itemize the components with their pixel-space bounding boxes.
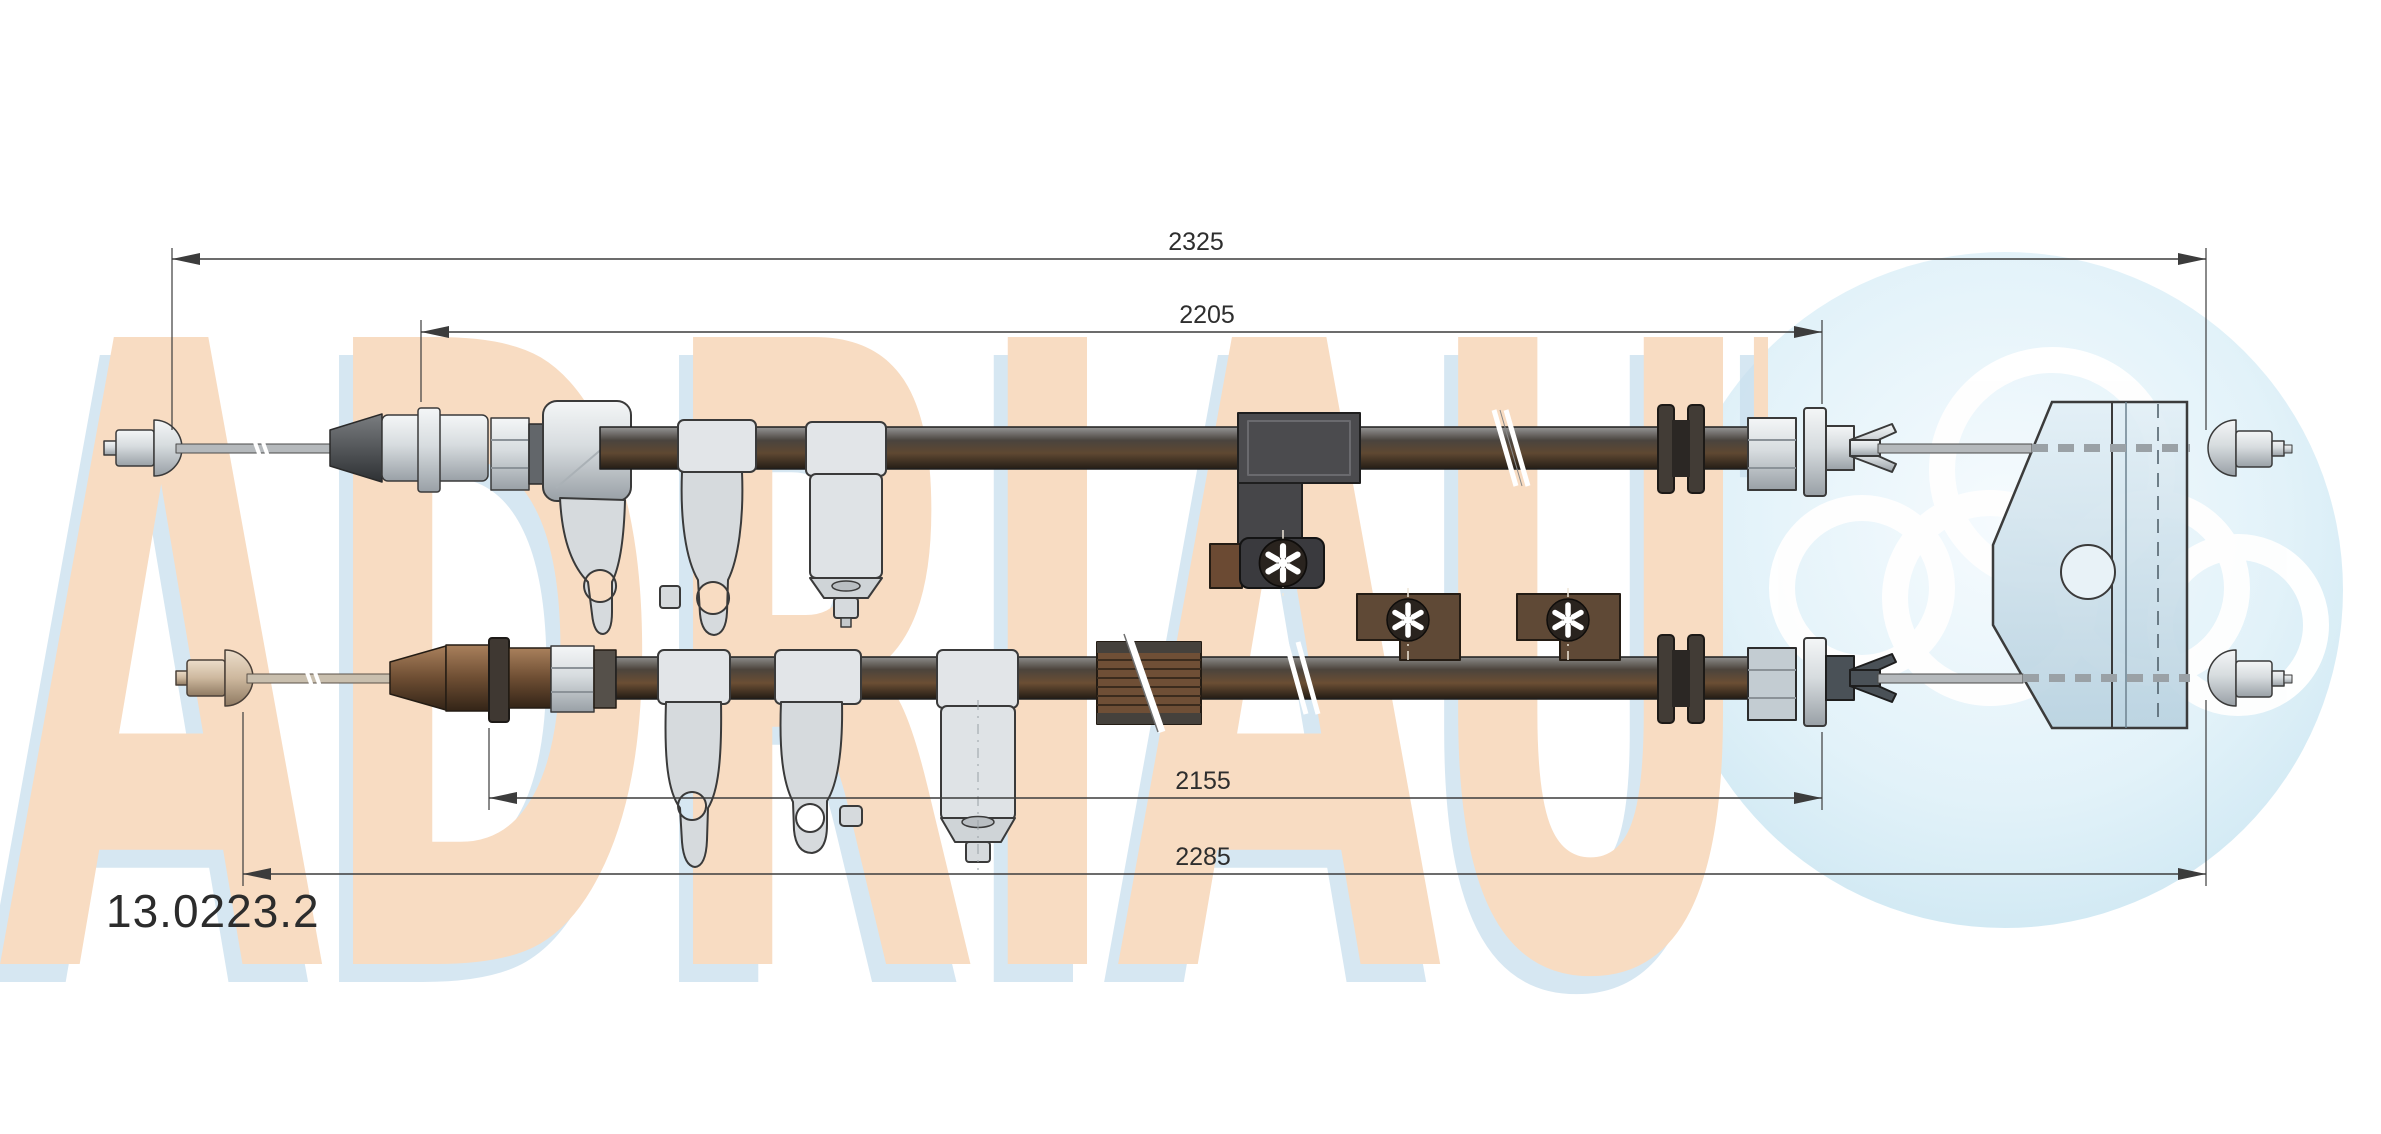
lower-mounting-flange-right bbox=[1804, 638, 1826, 726]
upper-left-cable-stub bbox=[104, 441, 117, 455]
upper-inner-cable-right bbox=[1878, 444, 2032, 453]
lower-inner-cable-right bbox=[1878, 674, 2023, 683]
dimension-label: 2155 bbox=[1175, 767, 1231, 795]
dimension-label: 2325 bbox=[1168, 228, 1224, 256]
corrugated-sleeve bbox=[1097, 634, 1201, 732]
upper-right-nipple bbox=[2236, 431, 2272, 467]
lower-adjuster-housing bbox=[446, 645, 489, 711]
star-fastener-icon bbox=[1387, 599, 1429, 641]
part-number: 13.0223.2 bbox=[106, 885, 320, 937]
upper-bolt-stud bbox=[834, 598, 858, 618]
star-fastener-icon bbox=[1259, 539, 1306, 586]
upper-left-nipple bbox=[116, 430, 154, 466]
star-fastener-icon bbox=[1547, 599, 1589, 641]
upper-mounting-flange-right bbox=[1804, 408, 1826, 496]
lower-right-nut bbox=[1748, 648, 1796, 720]
lower-left-cable-stub bbox=[176, 671, 188, 685]
lower-adjuster-nut bbox=[551, 646, 594, 712]
dimension-label: 2205 bbox=[1179, 301, 1235, 329]
upper-adjuster-nut bbox=[491, 418, 529, 490]
upper-outer-sheath bbox=[600, 427, 1748, 469]
upper-right-nut bbox=[1748, 418, 1796, 490]
dimension-label: 2285 bbox=[1175, 843, 1231, 871]
drawing-canvas: ADRIAUTO ADRIAUTO bbox=[0, 0, 2381, 1134]
equalizer-hole bbox=[2061, 545, 2115, 599]
upper-mounting-flange-left bbox=[418, 408, 440, 492]
brake-cable-technical-drawing: ADRIAUTO ADRIAUTO bbox=[0, 0, 2381, 1134]
lower-right-nipple bbox=[2236, 661, 2272, 697]
lower-mounting-flange-left bbox=[489, 638, 509, 722]
lower-left-nipple bbox=[187, 660, 225, 696]
